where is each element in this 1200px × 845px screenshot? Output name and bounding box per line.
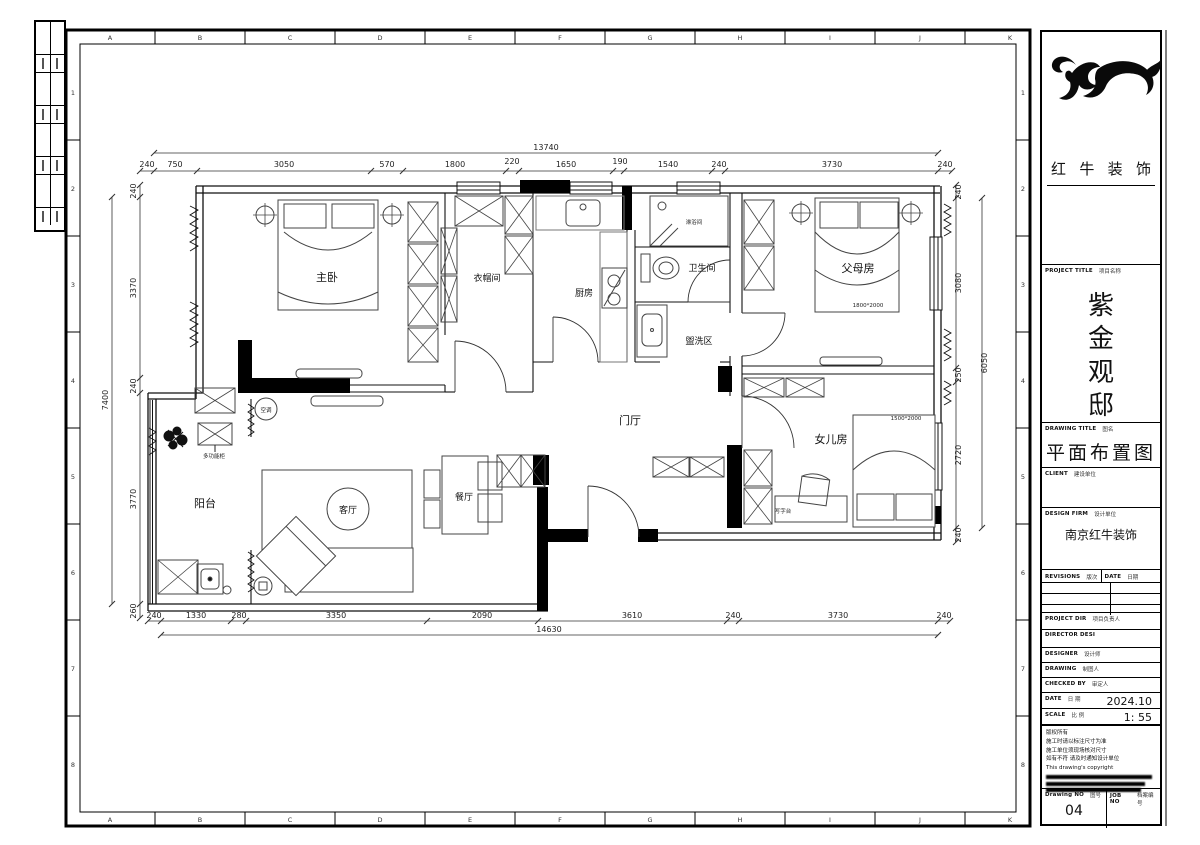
title-block: 红 牛 装 饰 PROJECT TITLE 项目名称 紫 金 观 邸 DRAWI… (1040, 30, 1162, 826)
design-firm-name: 南京红牛装饰 (1042, 526, 1160, 543)
svg-text:8: 8 (1021, 761, 1025, 769)
svg-text:I: I (829, 816, 831, 824)
room-label-dining: 餐厅 (455, 491, 473, 503)
revisions-section: REVISIONS 版次 DATE 日期 (1042, 569, 1160, 612)
client-section: CLIENT 建设单位 (1042, 467, 1160, 507)
svg-text:3350: 3350 (326, 611, 346, 620)
svg-text:1540: 1540 (658, 160, 678, 169)
label-parents-bed-size: 1800*2000 (853, 303, 884, 309)
svg-text:3050: 3050 (274, 160, 294, 169)
svg-text:4: 4 (71, 377, 75, 385)
room-label-living: 客厅 (339, 504, 357, 516)
svg-text:190: 190 (612, 157, 627, 166)
svg-text:6: 6 (1021, 569, 1025, 577)
svg-text:240: 240 (146, 611, 161, 620)
drawing-title-section: DRAWING TITLE 图名 平面布置图 (1042, 422, 1160, 467)
room-label-shower: 淋浴间 (686, 218, 703, 226)
drawing-sheet: A B C D E F G H I J K A B C D E F G H I … (0, 0, 1200, 845)
svg-text:240: 240 (129, 378, 138, 393)
svg-text:260: 260 (129, 603, 138, 618)
svg-text:3: 3 (1021, 281, 1025, 289)
svg-text:E: E (468, 816, 472, 824)
company-logo-area: 红 牛 装 饰 (1042, 32, 1160, 264)
svg-text:2720: 2720 (954, 445, 963, 465)
svg-text:H: H (738, 34, 743, 42)
room-label-bath: 卫生间 (688, 262, 715, 274)
svg-text:I: I (829, 34, 831, 42)
svg-text:J: J (918, 816, 921, 824)
room-label-balcony: 阳台 (194, 496, 216, 510)
scale-row: SCALE 比 例 1: 55 (1042, 708, 1160, 724)
room-label-cloak: 衣帽间 (473, 272, 500, 284)
svg-text:B: B (198, 34, 202, 42)
svg-text:C: C (288, 34, 293, 42)
svg-text:240: 240 (129, 183, 138, 198)
notes-section: 版权所有 施工时请以标注尺寸为准 施工单位须现场核对尺寸 如有不符 请及时通知设… (1042, 724, 1160, 788)
svg-text:7: 7 (1021, 665, 1025, 673)
svg-text:J: J (918, 34, 921, 42)
svg-text:1: 1 (1021, 89, 1025, 97)
label-ac: 空调 (260, 406, 272, 414)
svg-text:A: A (108, 816, 113, 824)
svg-text:3: 3 (71, 281, 75, 289)
svg-text:6: 6 (71, 569, 75, 577)
svg-text:F: F (558, 816, 562, 824)
checked-by-row: CHECKED BY 审定人 (1042, 677, 1160, 692)
svg-text:240: 240 (954, 184, 963, 199)
project-title: 紫 金 观 邸 (1042, 289, 1160, 422)
date-row: DATE 日 期 2024.10 (1042, 692, 1160, 708)
scale-value: 1: 55 (1124, 711, 1152, 724)
svg-text:3730: 3730 (828, 611, 848, 620)
svg-text:1800: 1800 (445, 160, 465, 169)
svg-text:A: A (108, 34, 113, 42)
svg-text:3610: 3610 (622, 611, 642, 620)
date-value: 2024.10 (1107, 695, 1153, 708)
svg-text:D: D (377, 816, 382, 824)
svg-text:E: E (468, 34, 472, 42)
svg-text:3770: 3770 (129, 489, 138, 509)
svg-text:13740: 13740 (533, 143, 558, 152)
svg-text:240: 240 (954, 527, 963, 542)
project-dir-row: PROJECT DIR 项目负责人 (1042, 612, 1160, 629)
room-label-kitchen: 厨房 (575, 287, 593, 299)
svg-text:H: H (738, 816, 743, 824)
sheet-frame (66, 30, 1166, 826)
director-row: DIRECTOR DESI (1042, 629, 1160, 647)
svg-text:5: 5 (71, 473, 75, 481)
drawing-by-row: DRAWING 制图人 (1042, 662, 1160, 677)
designer-row: DESIGNER 设计师 (1042, 647, 1160, 662)
svg-text:3080: 3080 (954, 273, 963, 293)
svg-text:250: 250 (954, 367, 963, 382)
svg-text:1650: 1650 (556, 160, 576, 169)
room-label-master: 主卧 (316, 271, 338, 284)
sheet-index-strip (34, 20, 66, 232)
label-multicab: 多功能柜 (203, 452, 226, 460)
drawing-no-value: 04 (1042, 803, 1106, 819)
svg-text:1: 1 (71, 89, 75, 97)
svg-text:2: 2 (71, 185, 75, 193)
svg-text:240: 240 (139, 160, 154, 169)
svg-text:240: 240 (725, 611, 740, 620)
company-name: 红 牛 装 饰 (1042, 158, 1160, 179)
svg-text:2: 2 (1021, 185, 1025, 193)
svg-text:K: K (1008, 34, 1013, 42)
svg-text:6050: 6050 (980, 353, 989, 373)
svg-text:240: 240 (711, 160, 726, 169)
svg-text:G: G (647, 816, 652, 824)
svg-text:K: K (1008, 816, 1013, 824)
svg-text:4: 4 (1021, 377, 1025, 385)
svg-text:G: G (647, 34, 652, 42)
svg-text:240: 240 (936, 611, 951, 620)
label-desk: 写字台 (775, 507, 792, 515)
svg-text:3730: 3730 (822, 160, 842, 169)
door-arcs (455, 260, 794, 537)
design-firm-section: DESIGN FIRM 设计单位 南京红牛装饰 (1042, 507, 1160, 569)
label-daughter-bed-size: 1500*2000 (891, 416, 922, 422)
svg-text:7400: 7400 (101, 390, 110, 410)
room-label-parents: 父母房 (842, 262, 875, 275)
drawing-title: 平面布置图 (1042, 438, 1160, 465)
svg-text:14630: 14630 (536, 625, 561, 634)
project-title-section: PROJECT TITLE 项目名称 紫 金 观 邸 (1042, 264, 1160, 422)
svg-text:570: 570 (379, 160, 394, 169)
room-label-hall: 门厅 (619, 413, 641, 427)
svg-text:5: 5 (1021, 473, 1025, 481)
svg-text:B: B (198, 816, 202, 824)
bull-logo-icon (1042, 40, 1162, 148)
svg-text:750: 750 (167, 160, 182, 169)
svg-text:D: D (377, 34, 382, 42)
svg-text:220: 220 (504, 157, 519, 166)
svg-text:C: C (288, 816, 293, 824)
svg-text:280: 280 (231, 611, 246, 620)
svg-text:3370: 3370 (129, 278, 138, 298)
room-label-daughter: 女儿房 (815, 432, 848, 446)
room-label-wash: 盥洗区 (685, 335, 712, 347)
svg-text:8: 8 (71, 761, 75, 769)
svg-text:2090: 2090 (472, 611, 492, 620)
floor-plan-svg: A B C D E F G H I J K A B C D E F G H I … (0, 0, 1200, 845)
svg-text:240: 240 (937, 160, 952, 169)
drawing-no-section: Drawing NO 图号 04 JOB NO 档案编号 (1042, 788, 1160, 828)
svg-text:1330: 1330 (186, 611, 206, 620)
svg-text:7: 7 (71, 665, 75, 673)
svg-text:F: F (558, 34, 562, 42)
